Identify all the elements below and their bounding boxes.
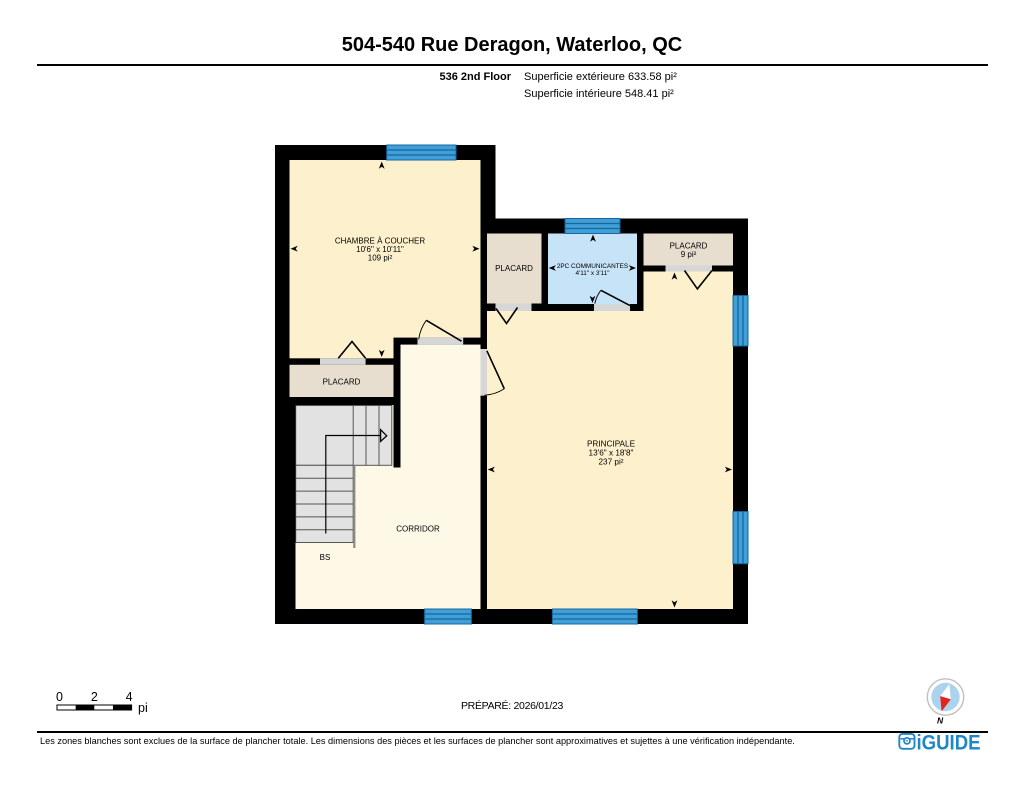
svg-text:109 pi²: 109 pi²: [368, 254, 393, 263]
svg-text:N: N: [937, 716, 944, 726]
svg-text:PLACARD: PLACARD: [495, 264, 533, 273]
svg-text:PLACARD: PLACARD: [323, 378, 361, 387]
svg-text:PRINCIPALE: PRINCIPALE: [587, 440, 636, 449]
svg-text:CORRIDOR: CORRIDOR: [396, 525, 440, 534]
svg-text:13'6" x 18'8": 13'6" x 18'8": [589, 449, 634, 458]
svg-text:iGUIDE: iGUIDE: [917, 731, 981, 754]
svg-text:9 pi²: 9 pi²: [681, 250, 697, 259]
svg-text:237 pi²: 237 pi²: [598, 458, 623, 467]
svg-text:BS: BS: [320, 553, 331, 562]
svg-text:4'11" x 3'11": 4'11" x 3'11": [575, 270, 609, 277]
svg-text:2PC COMMUNICANTES: 2PC COMMUNICANTES: [557, 263, 628, 270]
